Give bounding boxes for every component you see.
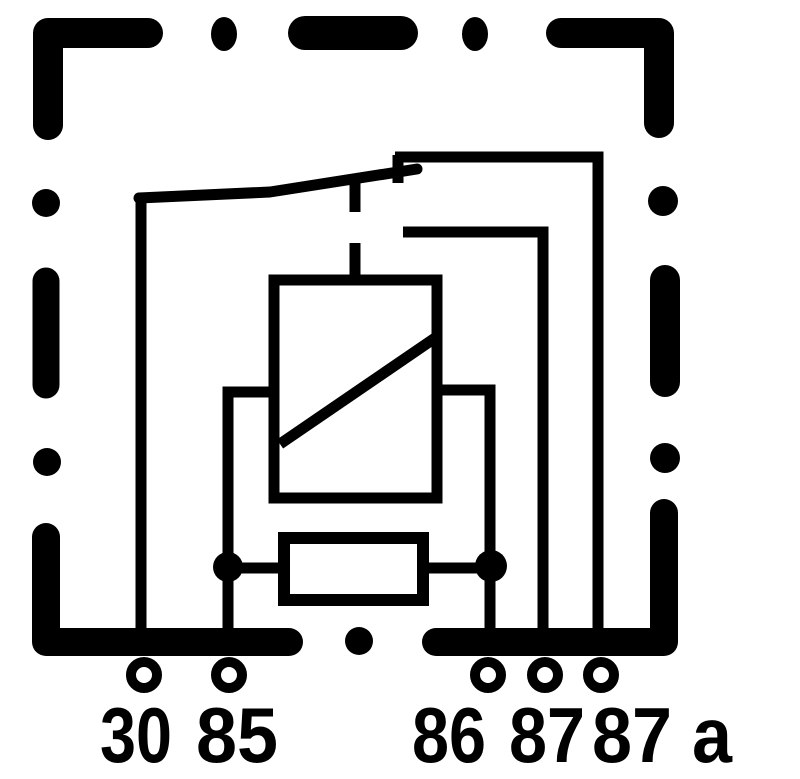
junction-dot-85 xyxy=(213,552,243,582)
outline-bottom-left-corner xyxy=(46,537,289,642)
outline-bottom-dot xyxy=(345,627,373,655)
outline-top-left-corner xyxy=(48,33,148,125)
wire-terminal-85 xyxy=(228,392,274,646)
terminal-pin-87 xyxy=(532,662,558,688)
terminal-pin-30 xyxy=(131,662,157,688)
outline-right-dot-2 xyxy=(650,443,680,473)
outline-left-dot-1 xyxy=(32,189,60,217)
terminal-pins xyxy=(131,662,614,688)
terminal-label-86: 86 xyxy=(412,691,486,779)
terminal-pin-87a xyxy=(588,662,614,688)
switch-blade xyxy=(139,169,417,198)
junction-dot-86 xyxy=(475,550,507,582)
outline-bottom-right-corner xyxy=(436,513,664,642)
outline-top-right-corner xyxy=(561,33,659,123)
relay-circuit-diagram: 30 85 86 87 87 a xyxy=(0,0,800,779)
outline-left-dot-2 xyxy=(33,448,61,476)
terminal-label-30: 30 xyxy=(100,691,172,779)
terminal-labels: 30 85 86 87 87 a xyxy=(100,691,733,779)
terminal-pin-85 xyxy=(216,662,242,688)
outline-top-dot-1 xyxy=(211,17,237,51)
outline-right-dot-1 xyxy=(648,186,678,216)
wire-terminal-86 xyxy=(437,390,490,646)
terminal-label-85: 85 xyxy=(196,691,278,779)
outline-top-dot-2 xyxy=(462,17,488,51)
terminal-label-87a: 87 a xyxy=(592,691,733,779)
terminal-pin-86 xyxy=(475,662,501,688)
relay-schematic-page: 30 85 86 87 87 a xyxy=(0,0,800,779)
resistor-symbol xyxy=(284,538,423,600)
terminal-label-87: 87 xyxy=(509,691,585,779)
